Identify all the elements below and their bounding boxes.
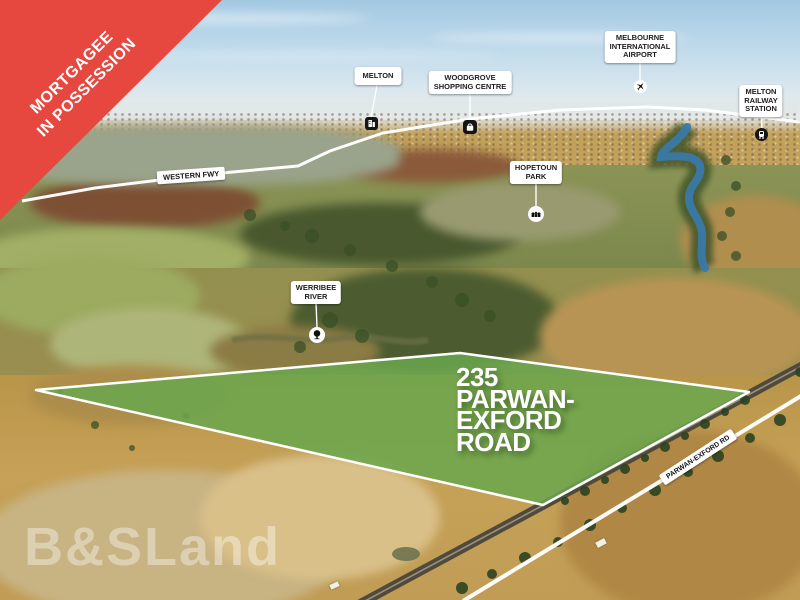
callout-label: SHOPPING CENTRE — [434, 83, 507, 92]
farm-dam — [392, 547, 420, 561]
callout-hopetoun-park: HOPETOUN PARK — [510, 161, 562, 184]
callout-label: STATION — [744, 105, 777, 114]
aerial-property-photo: MELTON WOODGROVE SHOPPING CENTRE MELBOUR… — [0, 0, 800, 600]
tree-icon — [309, 327, 325, 348]
callout-label: RIVER — [296, 293, 336, 302]
callout-werribee-river: WERRIBEE RIVER — [291, 281, 341, 304]
callout-label: PARK — [515, 173, 557, 182]
callout-label: MELTON — [363, 72, 394, 81]
callout-label: AIRPORT — [610, 51, 671, 60]
airplane-icon — [634, 80, 647, 98]
shopping-bag-icon — [463, 120, 477, 139]
property-boundary-highlight — [36, 353, 749, 505]
property-address: 235 PARWAN- EXFORD ROAD — [456, 367, 574, 453]
callout-melbourne-airport: MELBOURNE INTERNATIONAL AIRPORT — [605, 31, 676, 63]
building-icon — [365, 117, 378, 135]
callout-woodgrove: WOODGROVE SHOPPING CENTRE — [429, 71, 512, 94]
callout-melton: MELTON — [355, 67, 402, 85]
houses-icon — [528, 206, 544, 227]
train-icon — [755, 128, 768, 146]
callout-melton-railway-station: MELTON RAILWAY STATION — [739, 85, 782, 117]
creek — [232, 337, 428, 342]
agency-watermark: B&SLand — [24, 520, 281, 574]
